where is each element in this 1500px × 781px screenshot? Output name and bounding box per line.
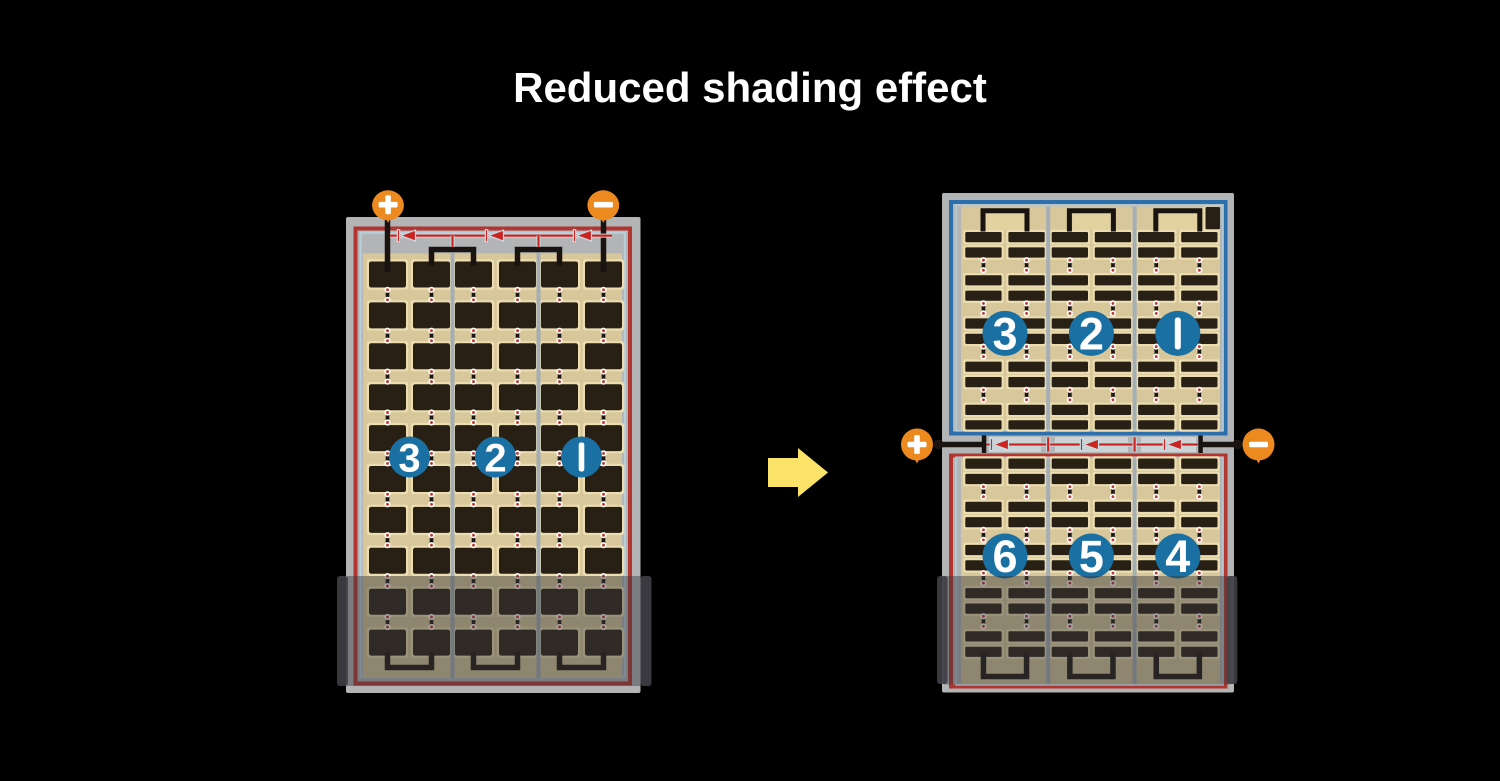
- svg-text:5: 5: [1079, 531, 1104, 582]
- svg-text:3: 3: [992, 309, 1017, 360]
- svg-text:2: 2: [484, 437, 506, 481]
- svg-text:4: 4: [1165, 531, 1190, 582]
- svg-text:6: 6: [992, 531, 1017, 582]
- svg-text:3: 3: [398, 437, 420, 481]
- svg-text:Reduced shading effect: Reduced shading effect: [513, 64, 987, 111]
- svg-text:2: 2: [1079, 309, 1104, 360]
